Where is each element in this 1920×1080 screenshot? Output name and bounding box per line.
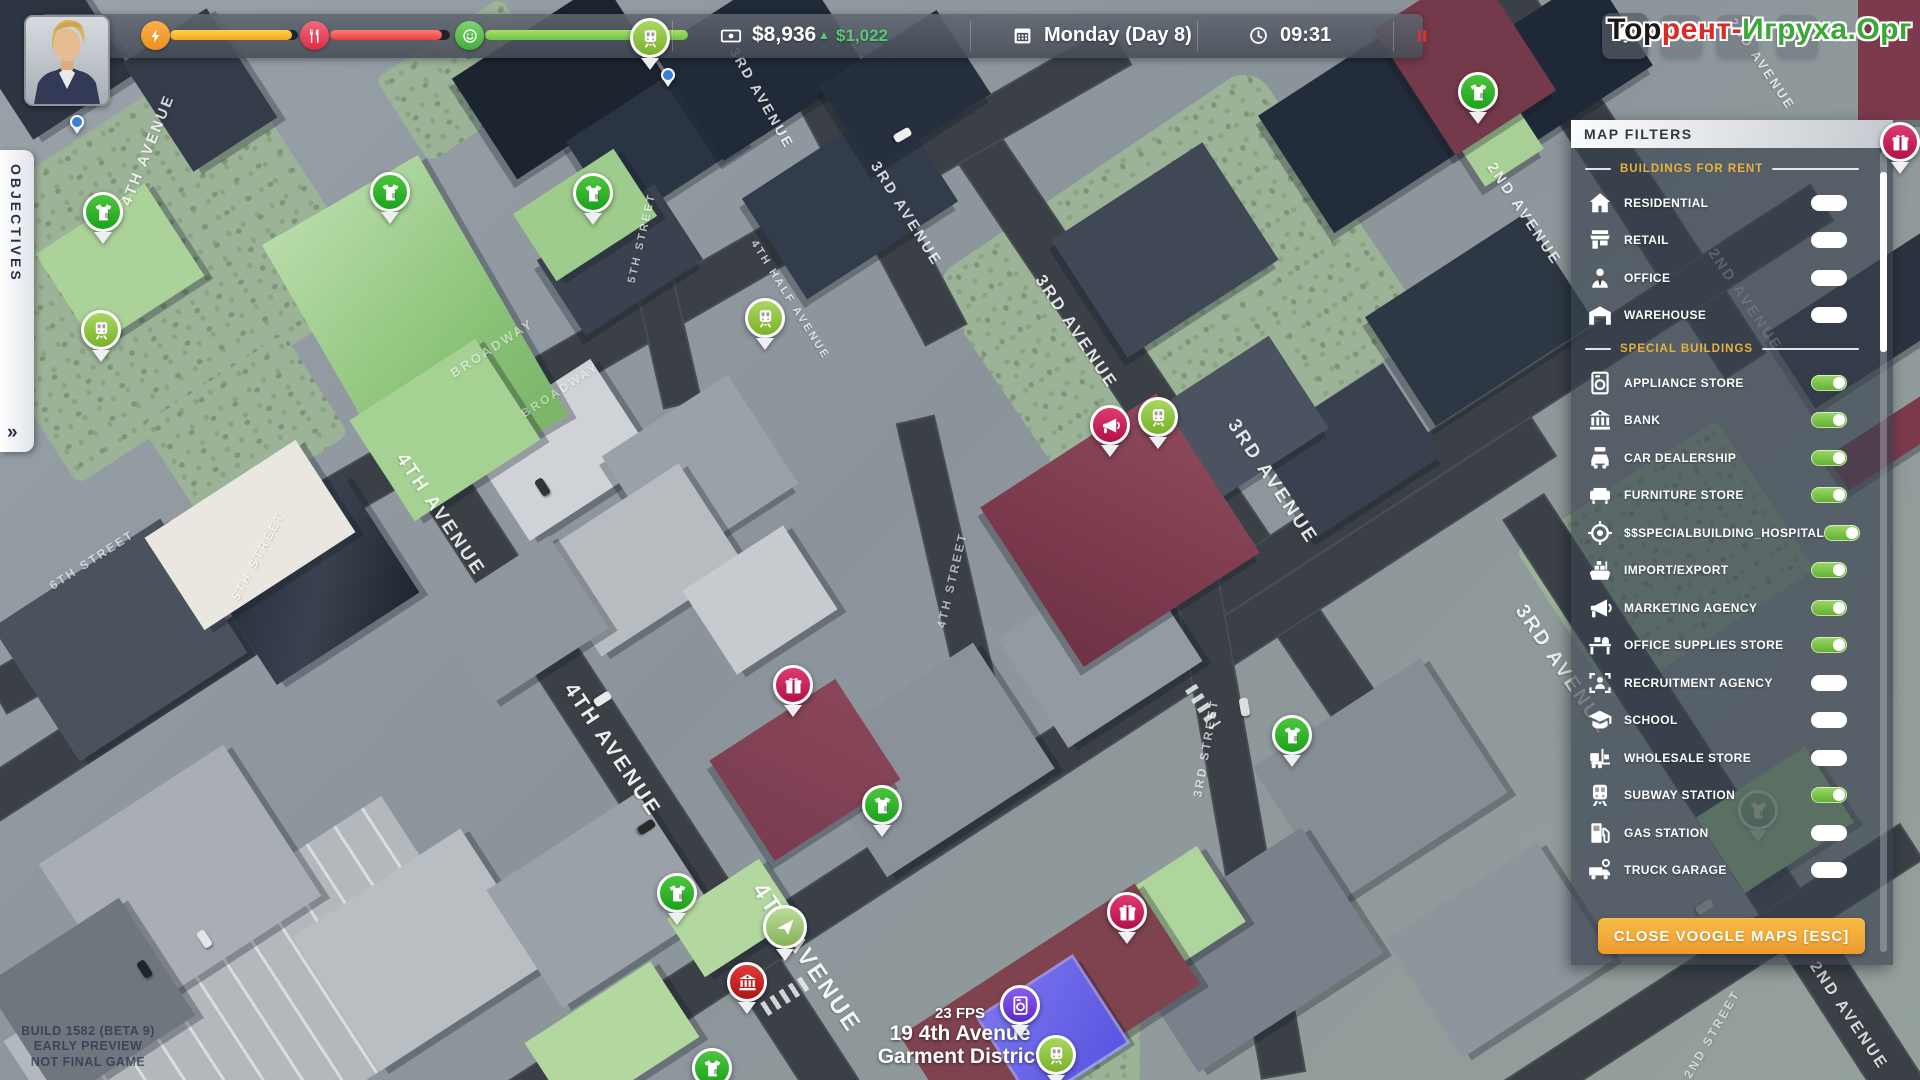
toggle-off[interactable] (1811, 307, 1847, 323)
toggle-on[interactable] (1811, 562, 1847, 578)
divider (1197, 21, 1198, 51)
pin-clothing-store[interactable] (692, 1048, 732, 1080)
hunger-bar (330, 30, 450, 40)
lightning-icon (141, 21, 170, 50)
toggle-off[interactable] (1811, 195, 1847, 211)
build-info-line: BUILD 1582 (BETA 9) (21, 1024, 155, 1039)
money-delta-arrow: ▲ (818, 28, 830, 42)
pin-subway-station[interactable] (1036, 1035, 1076, 1075)
pin-mini-pin (661, 68, 675, 82)
filter-row-office: OFFICE (1571, 259, 1873, 297)
filter-row-truck-garage: TRUCK GARAGE (1571, 852, 1873, 890)
objectives-label: OBJECTIVES (8, 164, 24, 283)
school-icon (1585, 705, 1615, 735)
clock-icon (1248, 25, 1269, 51)
filter-label: WHOLESALE STORE (1615, 751, 1811, 765)
pin-clothing-store[interactable] (657, 873, 697, 913)
filter-label: IMPORT/EXPORT (1615, 563, 1811, 577)
filter-row-school: SCHOOL (1571, 702, 1873, 740)
time-value: 09:31 (1280, 24, 1331, 47)
date-value: Monday (Day 8) (1044, 24, 1192, 47)
map-filters-panel: MAP FILTERS BUILDINGS FOR RENTRESIDENTIA… (1571, 120, 1893, 965)
pin-marketing-agency[interactable] (1090, 405, 1130, 445)
toggle-on[interactable] (1811, 375, 1847, 391)
filter-row-appliance-store: APPLIANCE STORE (1571, 364, 1873, 402)
pin-player-position[interactable] (763, 905, 807, 949)
pin-subway-station[interactable] (1138, 397, 1178, 437)
filter-row-import-export: IMPORT/EXPORT (1571, 552, 1873, 590)
utensils-icon (300, 21, 329, 50)
close-voogle-maps-button[interactable]: CLOSE VOOGLE MAPS [ESC] (1598, 918, 1865, 954)
watermark-part2: рент- (1662, 13, 1742, 46)
car-icon (1585, 443, 1615, 473)
pin-bank[interactable] (727, 962, 767, 1002)
filter-label: WAREHOUSE (1615, 308, 1811, 322)
sofa-icon (1585, 480, 1615, 510)
recruit-icon (1585, 668, 1615, 698)
appliance-icon (1585, 368, 1615, 398)
filter-label: RECRUITMENT AGENCY (1615, 676, 1811, 690)
warehouse-icon (1585, 300, 1615, 330)
expand-chevron-icon: » (7, 422, 18, 444)
filter-label: APPLIANCE STORE (1615, 376, 1811, 390)
desk-icon (1585, 630, 1615, 660)
filter-row-recruitment-agency: RECRUITMENT AGENCY (1571, 664, 1873, 702)
filter-label: MARKETING AGENCY (1615, 601, 1811, 615)
filter-label: BANK (1615, 413, 1811, 427)
filter-row-bank: BANK (1571, 402, 1873, 440)
pin-mini-pin (70, 115, 84, 129)
divider (1393, 21, 1394, 51)
panel-title: MAP FILTERS (1571, 120, 1893, 148)
money-icon (720, 25, 742, 52)
pin-subway-station[interactable] (81, 310, 121, 350)
toggle-off[interactable] (1811, 862, 1847, 878)
pin-clothing-store[interactable] (573, 173, 613, 213)
toggle-off[interactable] (1811, 270, 1847, 286)
toggle-on[interactable] (1811, 450, 1847, 466)
pin-gift-store[interactable] (1880, 122, 1920, 162)
pin-clothing-store[interactable] (83, 192, 123, 232)
shop-icon (1585, 225, 1615, 255)
toggle-off[interactable] (1811, 675, 1847, 691)
section-header: SPECIAL BUILDINGS (1571, 334, 1873, 364)
toggle-on[interactable] (1811, 637, 1847, 653)
money-value: $8,936 (752, 23, 816, 47)
divider (970, 21, 971, 51)
pin-appliance-store[interactable] (1000, 985, 1040, 1025)
filter-label: RESIDENTIAL (1615, 196, 1811, 210)
objectives-tab[interactable]: OBJECTIVES » (0, 150, 34, 452)
pin-clothing-store[interactable] (370, 172, 410, 212)
pin-gift-store[interactable] (1107, 892, 1147, 932)
player-avatar[interactable] (24, 15, 110, 106)
panel-scrollbar-thumb[interactable] (1880, 172, 1887, 352)
filter-label: SUBWAY STATION (1615, 788, 1811, 802)
filter-label: GAS STATION (1615, 826, 1811, 840)
car (1239, 697, 1251, 716)
bank-icon (1585, 405, 1615, 435)
energy-bar (170, 30, 298, 40)
pause-indicator[interactable] (1412, 26, 1432, 51)
money-delta: $1,022 (836, 26, 888, 46)
filter-label: SCHOOL (1615, 713, 1811, 727)
filter-label: CAR DEALERSHIP (1615, 451, 1811, 465)
filter-label: OFFICE SUPPLIES STORE (1615, 638, 1811, 652)
pin-subway-station[interactable] (745, 298, 785, 338)
toggle-off[interactable] (1811, 750, 1847, 766)
pin-clothing-store[interactable] (1458, 72, 1498, 112)
house-icon (1585, 188, 1615, 218)
toggle-off[interactable] (1811, 712, 1847, 728)
filter-row-furniture-store: FURNITURE STORE (1571, 477, 1873, 515)
filter-row-car-dealership: CAR DEALERSHIP (1571, 439, 1873, 477)
filter-row-office-supplies-store: OFFICE SUPPLIES STORE (1571, 627, 1873, 665)
gas-icon (1585, 818, 1615, 848)
smiley-icon (455, 21, 484, 50)
pin-clothing-store[interactable] (862, 785, 902, 825)
filter-label: RETAIL (1615, 233, 1811, 247)
toggle-on[interactable] (1811, 487, 1847, 503)
toggle-on[interactable] (1811, 600, 1847, 616)
toggle-off[interactable] (1811, 825, 1847, 841)
filter-row-wholesale-store: WHOLESALE STORE (1571, 739, 1873, 777)
top-hud-bar: $8,936 ▲ $1,022 Monday (Day 8) 09:31 (40, 14, 1423, 58)
build-info-line: NOT FINAL GAME (21, 1055, 155, 1070)
watermark-part3: Игруха.Орг (1742, 13, 1912, 46)
pin-gift-store[interactable] (773, 665, 813, 705)
ship-icon (1585, 555, 1615, 585)
section-header: BUILDINGS FOR RENT (1571, 154, 1873, 184)
toggle-on[interactable] (1824, 525, 1860, 541)
filter-row-warehouse: WAREHOUSE (1571, 297, 1873, 335)
site-watermark: Торрент-Игруха.Орг (1607, 13, 1912, 47)
filter-row-retail: RETAIL (1571, 222, 1873, 260)
filter-row--specialbuilding-hospital: $$SPECIALBUILDING_HOSPITAL (1571, 514, 1873, 552)
forklift-icon (1585, 743, 1615, 773)
filter-label: FURNITURE STORE (1615, 488, 1811, 502)
toggle-on[interactable] (1811, 787, 1847, 803)
filter-label: $$SPECIALBUILDING_HOSPITAL (1615, 526, 1824, 540)
filter-row-marketing-agency: MARKETING AGENCY (1571, 589, 1873, 627)
address-line2: Garment District (878, 1045, 1043, 1068)
pin-clothing-store[interactable] (1272, 715, 1312, 755)
target-icon (1585, 518, 1615, 548)
truck-icon (1585, 855, 1615, 885)
filter-row-residential: RESIDENTIAL (1571, 184, 1873, 222)
pin-subway-station[interactable] (630, 18, 670, 58)
toggle-on[interactable] (1811, 412, 1847, 428)
train-icon (1585, 780, 1615, 810)
build-info: BUILD 1582 (BETA 9) EARLY PREVIEW NOT FI… (21, 1024, 155, 1070)
office-icon (1585, 263, 1615, 293)
filter-row-gas-station: GAS STATION (1571, 814, 1873, 852)
toggle-off[interactable] (1811, 232, 1847, 248)
game-screen: 4TH AVENUE4TH AVENUE4TH AVENUE4TH AVENUE… (0, 0, 1920, 1080)
filter-row-subway-station: SUBWAY STATION (1571, 777, 1873, 815)
megaphone-icon (1585, 593, 1615, 623)
calendar-icon (1012, 25, 1033, 51)
filter-label: TRUCK GARAGE (1615, 863, 1811, 877)
watermark-part1: Тор (1607, 13, 1662, 46)
divider (672, 21, 673, 51)
filter-label: OFFICE (1615, 271, 1811, 285)
build-info-line: EARLY PREVIEW (21, 1039, 155, 1054)
